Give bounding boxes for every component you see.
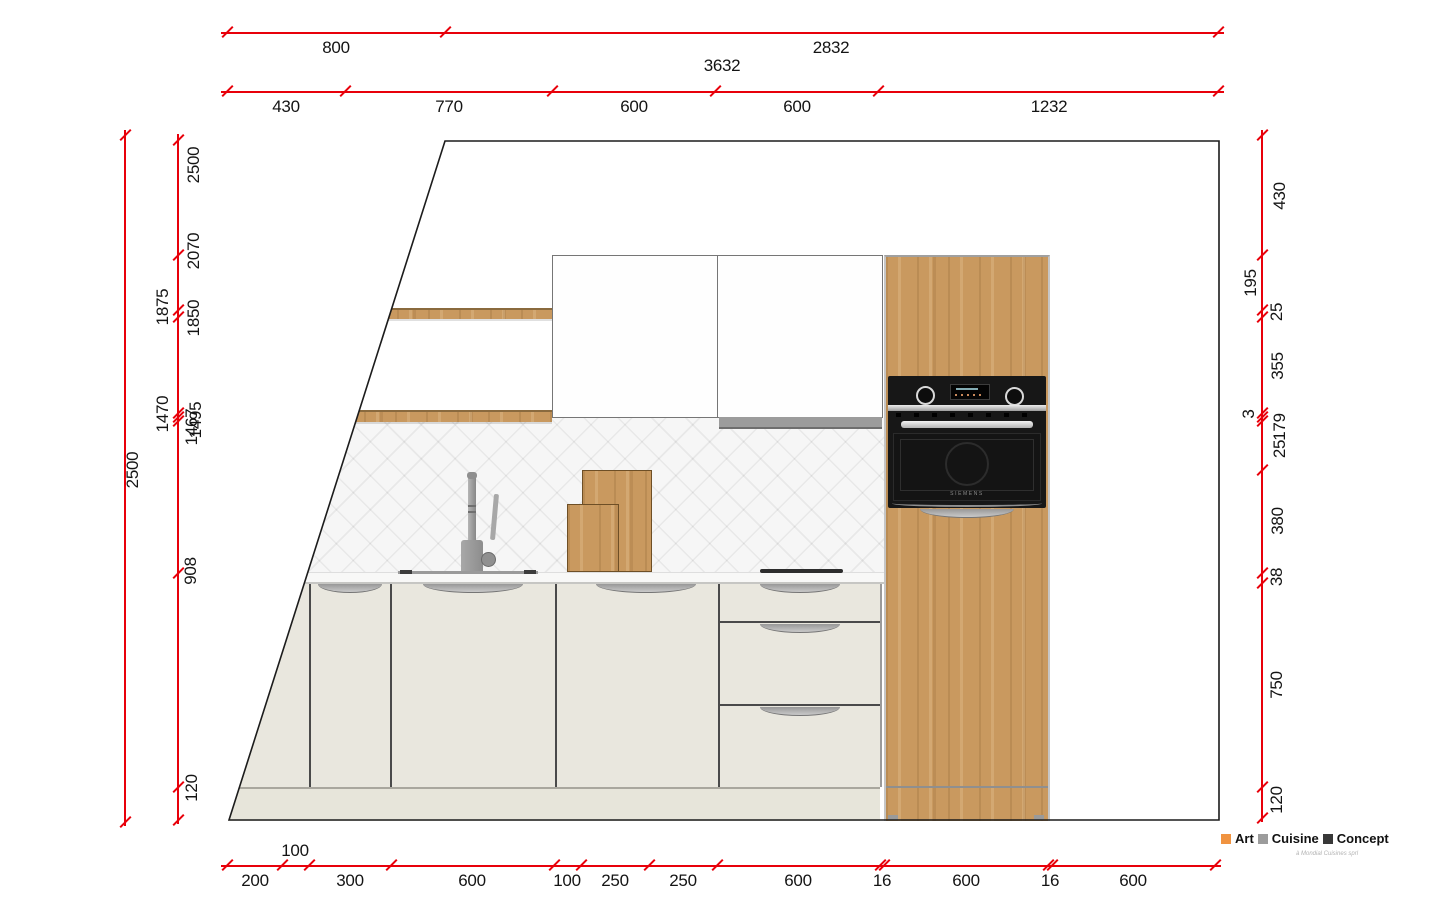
kitchen-elevation: SIEMENS (228, 140, 1220, 821)
dim-label: 600 (783, 97, 810, 117)
logo-word: Art (1235, 831, 1254, 846)
dim-label: 800 (322, 38, 349, 58)
logo-square-orange (1221, 834, 1231, 844)
dim-label: 3 (1239, 409, 1259, 418)
dim-label: 120 (182, 774, 202, 801)
dim-label: 2832 (813, 38, 850, 58)
dim-label: 16 (873, 871, 891, 891)
dim-label: 1470 (153, 396, 173, 433)
dim-label: 16 (1041, 871, 1059, 891)
logo-square-grey (1258, 834, 1268, 844)
dim-label: 600 (1119, 871, 1146, 891)
dim-label: 355 (1268, 352, 1288, 379)
dim-label: 25 (1267, 303, 1287, 321)
dim-label: 2500 (123, 452, 143, 489)
brand-logo: Art Cuisine Concept (1221, 831, 1389, 846)
dim-label: 195 (1241, 269, 1261, 296)
dim-label: 908 (181, 557, 201, 584)
dim-label: 770 (435, 97, 462, 117)
logo-square-dark (1323, 834, 1333, 844)
dim-label: 2070 (184, 233, 204, 270)
dim-label: 600 (952, 871, 979, 891)
logo-tagline: à Mondial Cuisines sprl (1296, 851, 1358, 857)
dim-label: 750 (1267, 671, 1287, 698)
dim-label: 250 (669, 871, 696, 891)
dim-label: 179 (1270, 413, 1290, 440)
dim-label: 100 (553, 871, 580, 891)
dim-line-right (1261, 130, 1263, 822)
logo-word: Concept (1337, 831, 1389, 846)
dim-label: 200 (241, 871, 268, 891)
dim-label: 100 (281, 841, 308, 861)
dim-label: 1232 (1031, 97, 1068, 117)
dim-label: 1467 (182, 409, 202, 446)
dim-line-top-2 (221, 91, 1224, 93)
dim-label: 1850 (184, 300, 204, 337)
dim-label: 1875 (153, 289, 173, 326)
dim-label: 300 (336, 871, 363, 891)
dim-label: 430 (1270, 182, 1290, 209)
dim-label: 38 (1267, 568, 1287, 586)
dim-line-left-inner (177, 134, 179, 824)
logo-word: Cuisine (1272, 831, 1319, 846)
dim-label: 2500 (184, 147, 204, 184)
dim-label: 25 (1270, 440, 1290, 458)
dim-label-total: 3632 (704, 56, 741, 76)
dim-label: 430 (272, 97, 299, 117)
dim-label: 380 (1268, 507, 1288, 534)
room-outline (228, 140, 1220, 821)
dim-label: 600 (620, 97, 647, 117)
dim-label: 120 (1267, 786, 1287, 813)
dim-label: 250 (601, 871, 628, 891)
dim-line-top-1 (221, 32, 1224, 34)
dim-label: 600 (458, 871, 485, 891)
elevation-drawing: 800 2832 3632 430 770 600 600 1232 200 1… (0, 0, 1432, 902)
dim-label: 600 (784, 871, 811, 891)
dim-line-bottom (221, 865, 1221, 867)
